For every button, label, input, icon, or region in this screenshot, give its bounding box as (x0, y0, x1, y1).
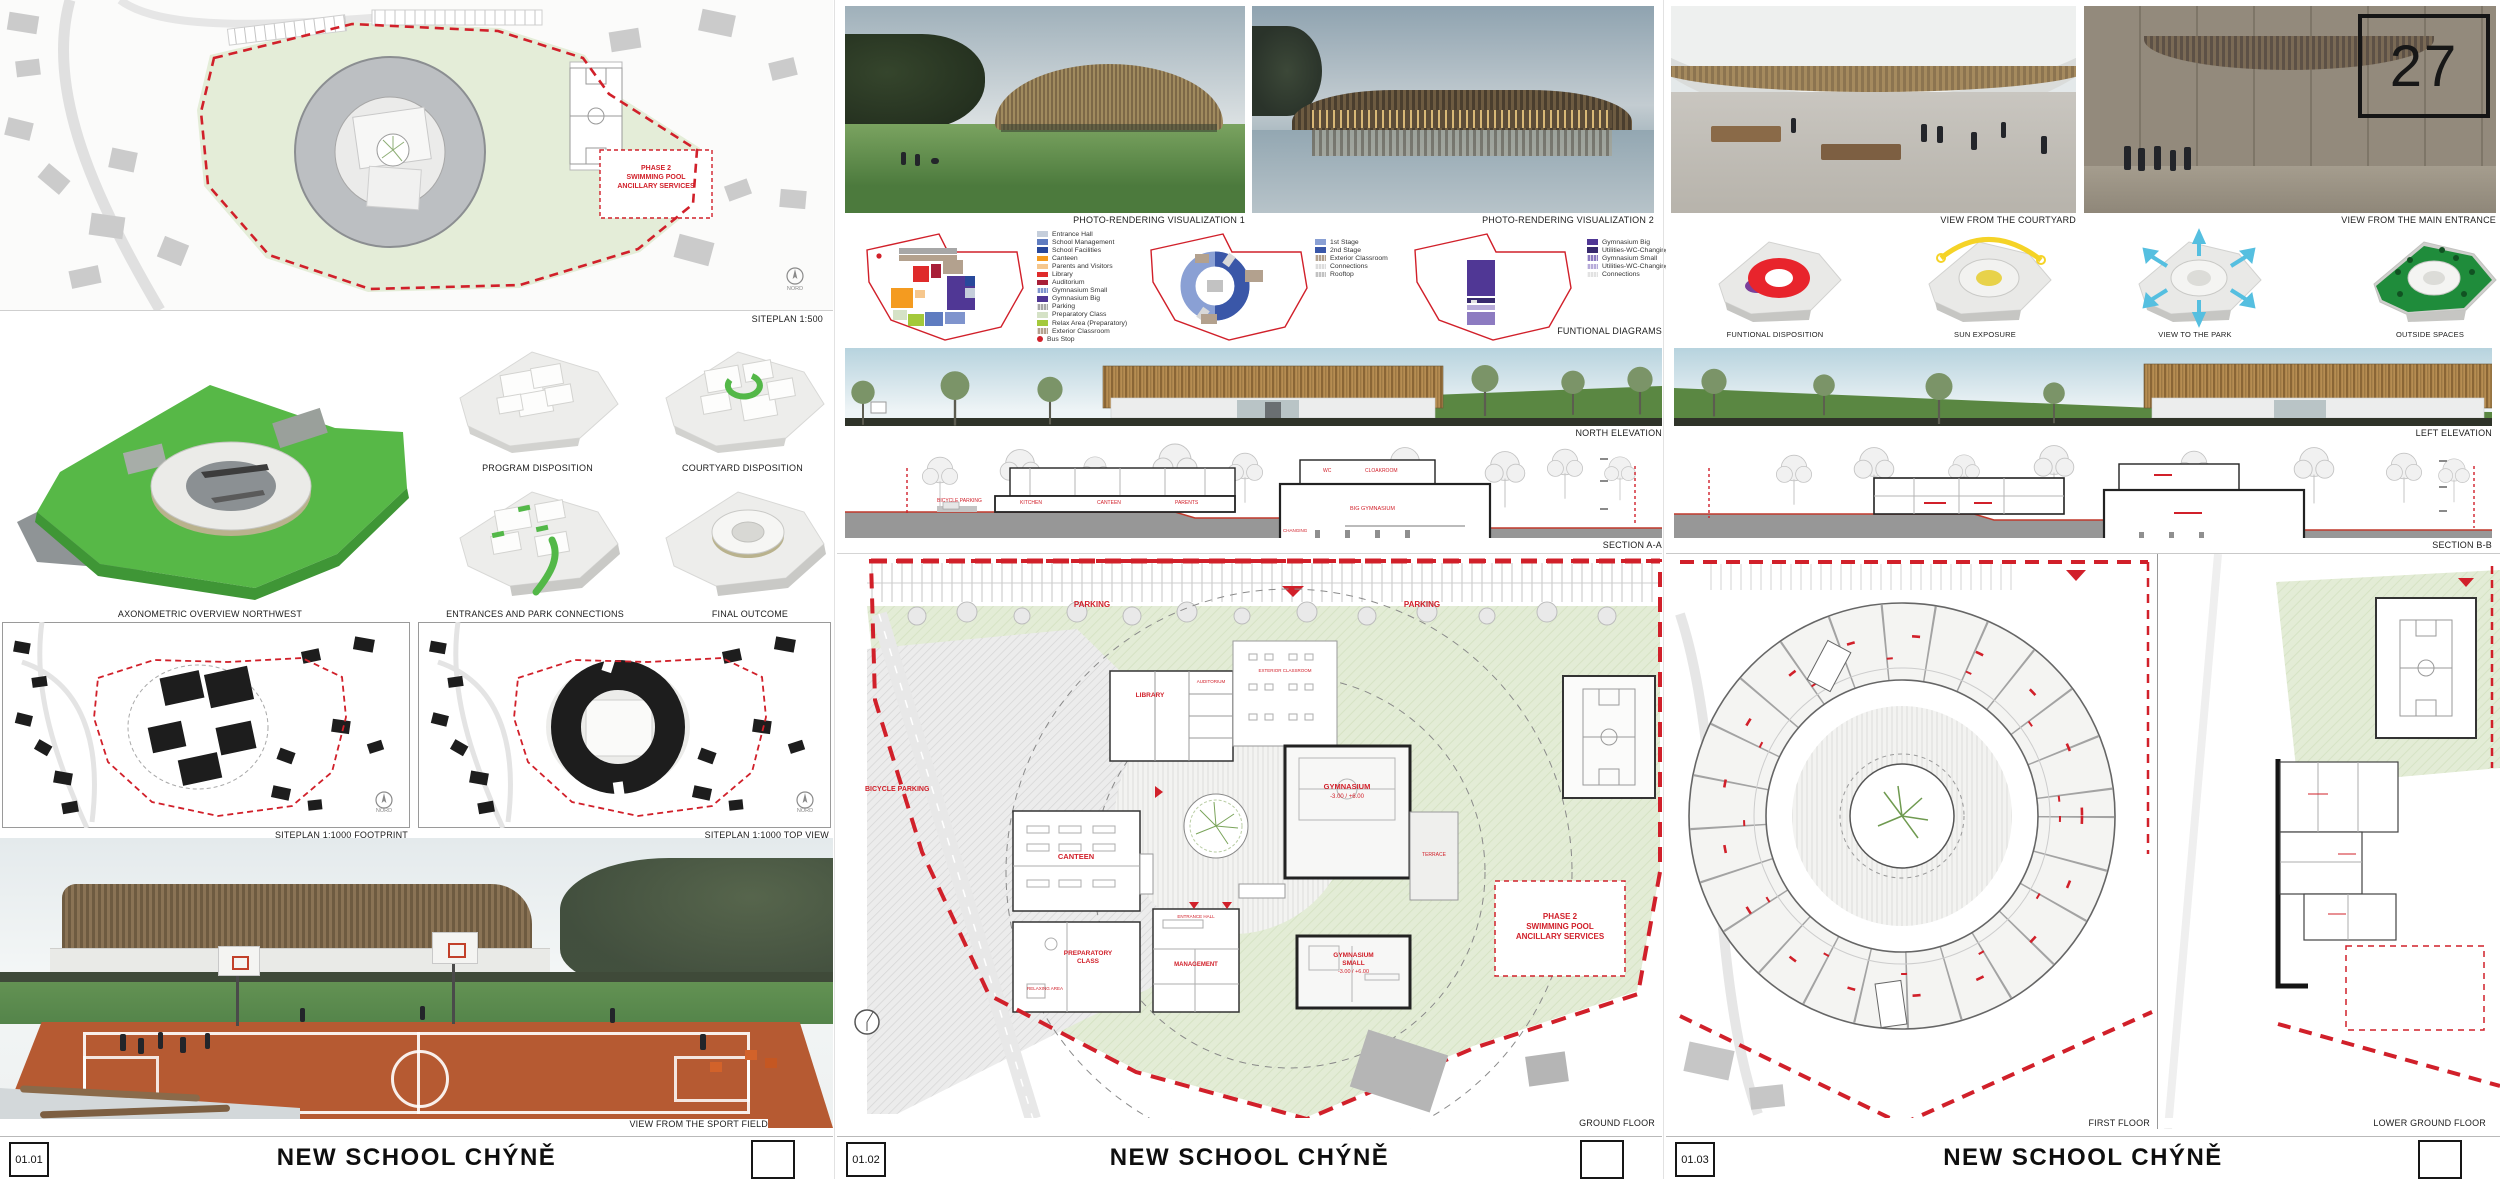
legend-stages: 1st Stage 2nd Stage Exterior Classroom C… (1315, 238, 1407, 278)
backboard (432, 932, 478, 964)
phase2-label: PHASE 2 SWIMMING POOL ANCILLARY SERVICES (604, 165, 708, 191)
legend-item: Preparatory Class (1037, 311, 1149, 319)
section-bb-drawing (1674, 438, 2492, 538)
meadow (845, 124, 1245, 213)
lower-ground-floor-drawing (2158, 554, 2500, 1129)
outside-spaces-caption: OUTSIDE SPACES (2345, 330, 2500, 339)
axonometric-overview-drawing (5, 340, 420, 605)
titleblock: 01.02 NEW SCHOOL CHÝNĚ (837, 1136, 1662, 1179)
entrance-hall-label: ENTRANCE HALL (1155, 914, 1237, 920)
gym-small-label: GYMNASIUM SMALL-3.00 / +6.00 (1302, 952, 1405, 976)
legend-item: Utilities-WC-Changing (1587, 246, 1665, 254)
left-elevation-panel (1674, 348, 2492, 426)
legend-item: 2nd Stage (1315, 246, 1407, 254)
view-to-park-caption: VIEW TO THE PARK (2110, 330, 2280, 339)
north-compass-label: NORD (773, 286, 817, 292)
siteplan-1-500-caption: SITEPLAN 1:500 (0, 314, 823, 324)
courtyard-disposition-caption: COURTYARD DISPOSITION (660, 463, 825, 473)
person (120, 1034, 126, 1051)
project-title: NEW SCHOOL CHÝNĚ (1666, 1144, 2500, 1172)
stamp-box (2418, 1140, 2462, 1179)
exterior-classroom-label: EXTERIOR CLASSROOM (1237, 668, 1333, 674)
orange-seat (745, 1050, 757, 1060)
left-elevation-drawing (1674, 348, 2492, 426)
lit-windows (1312, 110, 1612, 128)
bicycle-parking-label: BICYCLE PARKING (865, 786, 975, 795)
trees (560, 858, 833, 988)
person (610, 1008, 615, 1023)
entrance-floor (2084, 166, 2496, 213)
management-label: MANAGEMENT (1155, 962, 1237, 970)
titleblock: 01.03 NEW SCHOOL CHÝNĚ (1666, 1136, 2500, 1179)
orange-seat (710, 1062, 722, 1072)
person (300, 1008, 305, 1022)
legend-item: Auditorium (1037, 279, 1149, 287)
section-bb-panel (1674, 438, 2492, 538)
rendering-visualization-1 (845, 6, 1245, 213)
trees (845, 34, 985, 130)
section-label: PARENTS (1175, 500, 1198, 506)
sport-field-caption: VIEW FROM THE SPORT FIELD (0, 1119, 768, 1129)
final-outcome-caption: FINAL OUTCOME (680, 609, 820, 619)
section-label: KITCHEN (1020, 500, 1042, 506)
section-label: BIG GYMNASIUM (1350, 506, 1395, 513)
north-compass-label: NORD (364, 808, 404, 814)
ground-floor-plan: PARKING PARKING BICYCLE PARKING EXTERIOR… (837, 553, 1662, 1129)
entrances-caption: ENTRANCES AND PARK CONNECTIONS (440, 609, 630, 619)
section-aa-drawing (845, 438, 1662, 538)
courtyard-disposition-diagram (648, 338, 833, 456)
legend-item: Exterior Classroom (1037, 327, 1149, 335)
project-title: NEW SCHOOL CHÝNĚ (0, 1144, 833, 1172)
person (915, 154, 920, 166)
person (205, 1033, 210, 1049)
orange-seat (765, 1058, 777, 1068)
program-disposition-caption: PROGRAM DISPOSITION (455, 463, 620, 473)
person (2124, 146, 2131, 170)
person (1791, 118, 1796, 133)
legend-item: Exterior Classroom (1315, 254, 1407, 262)
outside-spaces-diagram (2346, 228, 2500, 328)
parking-label: PARKING (1052, 600, 1132, 610)
water-reflection (1252, 130, 1654, 213)
person (158, 1032, 163, 1049)
rendering-courtyard-view (1671, 6, 2076, 213)
legend-item: School Facilities (1037, 246, 1149, 254)
sport-field-rendering (0, 838, 833, 1128)
board-divider (834, 0, 835, 1179)
legend-item: Parking (1037, 303, 1149, 311)
person (138, 1038, 144, 1054)
stamp-box (751, 1140, 795, 1179)
picnic-table (1821, 144, 1901, 160)
person (2154, 146, 2161, 170)
north-elevation-panel (845, 348, 1662, 426)
sun-exposure-diagram (1901, 228, 2069, 328)
picnic-table (1711, 126, 1781, 142)
titleblock: 01.01 NEW SCHOOL CHÝNĚ (0, 1136, 833, 1179)
legend-item: 1st Stage (1315, 238, 1407, 246)
gym-big-label: GYMNASIUM-3.00 / +6.00 (1292, 782, 1402, 802)
final-outcome-diagram (648, 480, 833, 602)
project-title: NEW SCHOOL CHÝNĚ (837, 1144, 1662, 1172)
legend-item: Utilities-WC-Changing (1587, 262, 1665, 270)
canteen-label: CANTEEN (1033, 852, 1119, 861)
legend-item: Connections (1315, 262, 1407, 270)
person (2001, 122, 2006, 138)
legend-item: Canteen (1037, 254, 1149, 262)
bus-stop-dot-icon (1037, 336, 1043, 342)
siteplan-footprint-drawing (2, 622, 410, 828)
legend-item: Parents and Visitors (1037, 262, 1149, 270)
section-label: WC (1323, 468, 1331, 474)
legend-item: Gymnasium Small (1587, 254, 1665, 262)
relaxing-area-label: RELAXING AREA (1015, 986, 1075, 992)
person (700, 1034, 706, 1050)
person (2170, 150, 2176, 171)
section-label: CLOAKROOM (1365, 468, 1398, 474)
preparatory-label: PREPARATORY CLASS (1045, 950, 1131, 966)
program-disposition-diagram (440, 338, 630, 456)
courtyard-view-caption: VIEW FROM THE COURTYARD (1671, 215, 2076, 225)
section-label: CANTEEN (1097, 500, 1121, 506)
siteplan-topview-drawing (418, 622, 831, 828)
legend-item: Bus Stop (1037, 335, 1149, 343)
backboard (218, 946, 260, 976)
parking-label: PARKING (1382, 600, 1462, 610)
visualization-2-caption: PHOTO-RENDERING VISUALIZATION 2 (1252, 215, 1654, 225)
gymnasium-big-block (1285, 746, 1410, 878)
sheet-badge: 27 (2358, 14, 2490, 118)
board-01-01: PHASE 2 SWIMMING POOL ANCILLARY SERVICES… (0, 0, 833, 1179)
auditorium-label: AUDITORIUM (1185, 679, 1237, 685)
terrace-label: TERRACE (1409, 852, 1459, 858)
left-elevation-caption: LEFT ELEVATION (1674, 428, 2492, 438)
siteplan-1-500-drawing (0, 0, 833, 310)
entrances-park-connections-diagram (440, 480, 630, 602)
legend-item: Relax Area (Preparatory) (1037, 319, 1149, 327)
lower-ground-caption: LOWER GROUND FLOOR (2158, 1118, 2486, 1128)
legend-item: Rooftop (1315, 270, 1407, 278)
dog (931, 158, 939, 164)
board-01-02: PHOTO-RENDERING VISUALIZATION 1 PHOTO-RE… (837, 0, 1662, 1179)
person (1971, 132, 1977, 150)
section-label: CHANGING (1283, 528, 1307, 534)
board-01-03: VIEW FROM THE COURTYARD 27 VIEW FROM THE… (1666, 0, 2500, 1179)
entrance-management-block (1153, 909, 1239, 1012)
ground-floor-drawing (837, 554, 1662, 1129)
legend-item: Library (1037, 270, 1149, 278)
main-entrance-caption: VIEW FROM THE MAIN ENTRANCE (2084, 215, 2496, 225)
section-aa-panel: BICYCLE PARKING KITCHEN CANTEEN PARENTS … (845, 438, 1662, 538)
functional-diagrams-caption: FUNTIONAL DIAGRAMS (1477, 326, 1662, 336)
sun-exposure-caption: SUN EXPOSURE (1900, 330, 2070, 339)
functional-disposition-caption: FUNTIONAL DISPOSITION (1690, 330, 1860, 339)
ground-floor-caption: GROUND FLOOR (837, 1118, 1655, 1128)
person (180, 1037, 186, 1053)
north-compass-label: NORD (785, 808, 825, 814)
rendering-main-entrance-view: 27 (2084, 6, 2496, 213)
board-divider (1663, 0, 1664, 1179)
siteplan-1-500-panel: PHASE 2 SWIMMING POOL ANCILLARY SERVICES… (0, 0, 833, 311)
round-wooden-school (995, 64, 1223, 130)
legend-item: Gymnasium Big (1587, 238, 1665, 246)
first-floor-caption: FIRST FLOOR (1666, 1118, 2150, 1128)
visualization-1-caption: PHOTO-RENDERING VISUALIZATION 1 (845, 215, 1245, 225)
competition-board-sheet: PHASE 2 SWIMMING POOL ANCILLARY SERVICES… (0, 0, 2500, 1179)
legend-item: Gymnasium Big (1037, 295, 1149, 303)
hoop-pole (452, 956, 455, 1024)
rendering-visualization-2 (1252, 6, 1654, 213)
first-floor-drawing (1666, 554, 2156, 1129)
hoop-pole (236, 968, 239, 1026)
person (420, 1006, 425, 1020)
view-to-park-diagram (2111, 228, 2279, 328)
legend-program: Entrance Hall School Management School F… (1037, 230, 1149, 343)
north-elevation-drawing (845, 348, 1662, 426)
legend-item: Entrance Hall (1037, 230, 1149, 238)
functional-disposition-diagram (1691, 228, 1859, 328)
functional-diagram-stages (1137, 228, 1317, 344)
legend-gym: Gymnasium Big Utilities-WC-Changing Gymn… (1587, 238, 1665, 278)
legend-item: Connections (1587, 270, 1665, 278)
person (2138, 148, 2145, 171)
section-label: BICYCLE PARKING (937, 498, 982, 504)
person (1921, 124, 1927, 142)
legend-item: Gymnasium Small (1037, 287, 1149, 295)
person (2041, 136, 2047, 154)
person (2184, 147, 2191, 170)
legend-swatch (1037, 231, 1048, 237)
north-elevation-caption: NORTH ELEVATION (845, 428, 1662, 438)
phase2-label: PHASE 2 SWIMMING POOL ANCILLARY SERVICES (1499, 912, 1621, 942)
library-label: LIBRARY (1113, 692, 1187, 700)
stamp-box (1580, 1140, 1624, 1179)
legend-item: School Management (1037, 238, 1149, 246)
section-aa-caption: SECTION A-A (845, 540, 1662, 550)
person (1937, 126, 1943, 143)
functional-diagram-program (853, 228, 1033, 344)
upper-plans-panel: FIRST FLOOR LOWER GROUND FLOOR (1666, 553, 2500, 1129)
axon-overview-caption: AXONOMETRIC OVERVIEW NORTHWEST (30, 609, 390, 619)
lawn (0, 982, 833, 1024)
person (901, 152, 906, 165)
section-bb-caption: SECTION B-B (1674, 540, 2492, 550)
